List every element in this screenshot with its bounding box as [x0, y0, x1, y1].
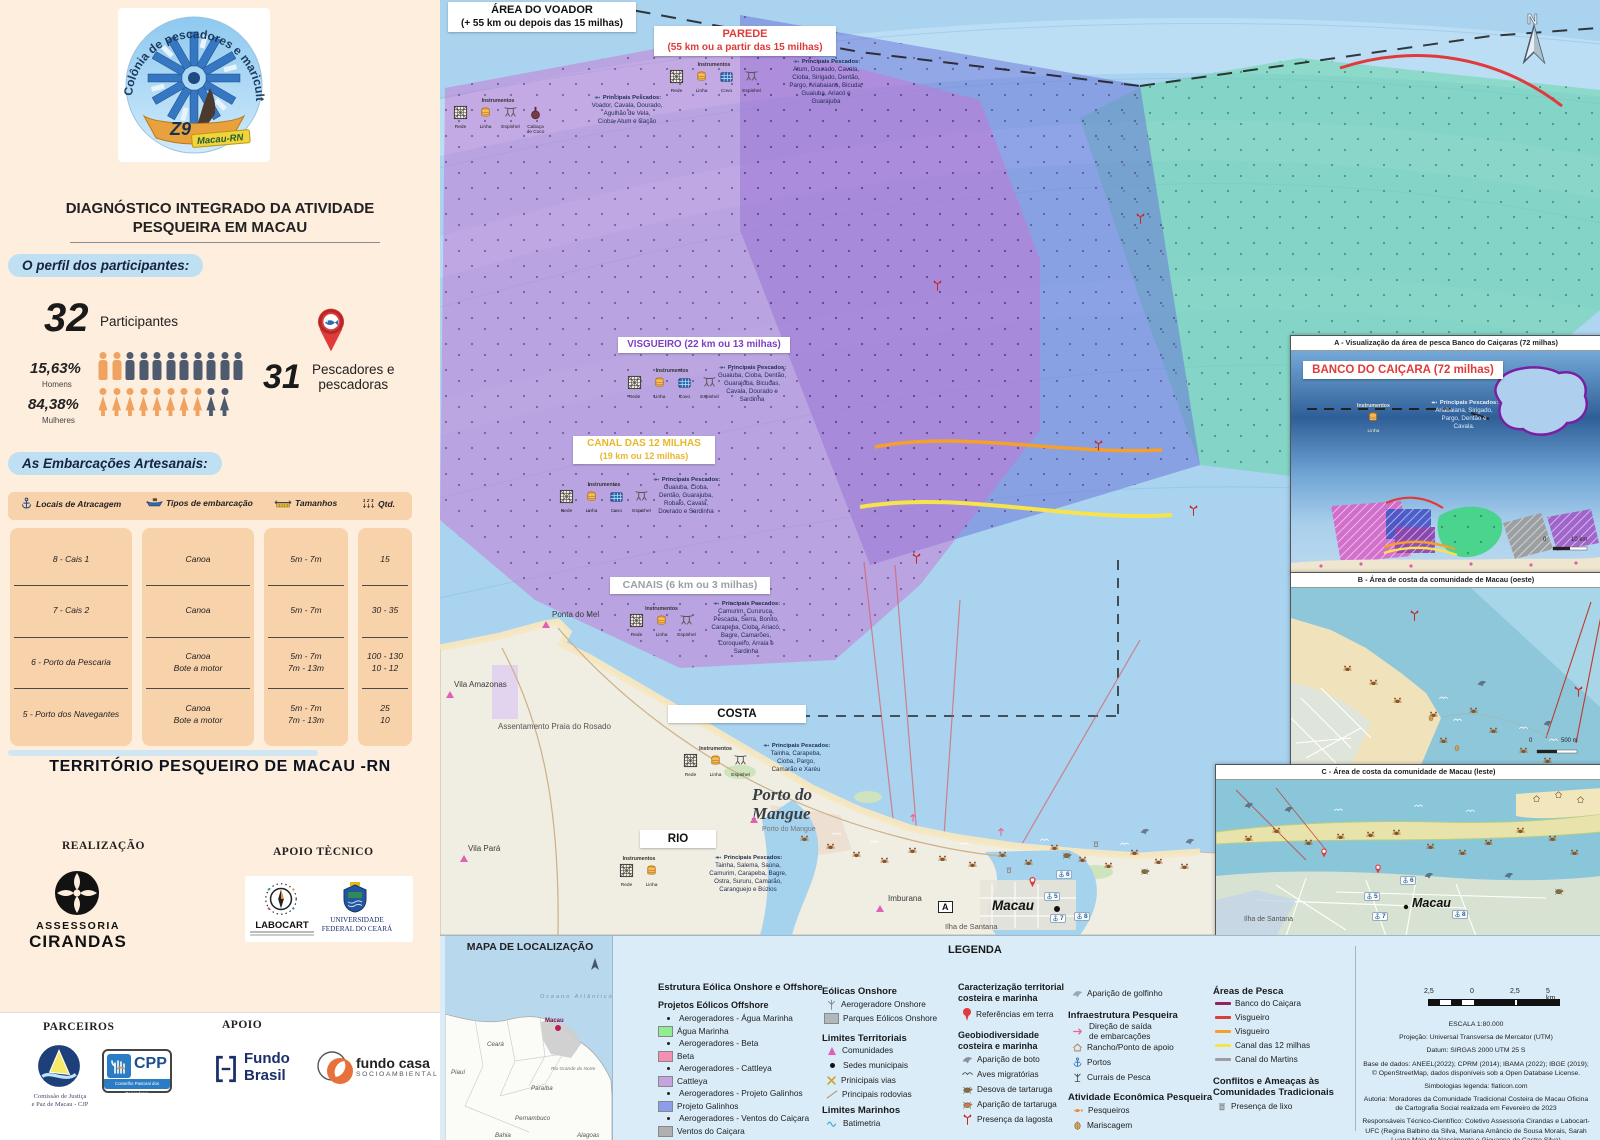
legend-item: Projeto Galinhos: [658, 1101, 738, 1112]
fundo-casa-label: fundo casa: [356, 1055, 430, 1071]
rede-icon: [669, 69, 684, 84]
zone-label-voador: ÁREA DO VOADOR (+ 55 km ou depois das 15…: [448, 2, 636, 32]
fish-icon: [714, 854, 722, 861]
inset-a-graphics: [1291, 351, 1600, 573]
boto-icon: [962, 1054, 973, 1065]
parede-pescados: Principais Pescados: Atum, Dourado, Cava…: [762, 58, 890, 106]
parede-instruments: Instrumentos Rede Linha Covo Espinhel: [666, 62, 762, 94]
zone-subtitle: (55 km ou a partir das 15 milhas): [659, 42, 831, 55]
legend-areas-header: Áreas de Pesca: [1213, 986, 1283, 997]
linha-icon: [694, 69, 709, 84]
reference-pin: [1028, 876, 1037, 888]
batimetria-icon: [826, 1118, 839, 1129]
legend-item: Sedes municipais: [826, 1061, 908, 1071]
sede-municipal-dot: [1054, 906, 1060, 912]
fundo-brasil-label: Fundo Brasil: [244, 1051, 290, 1084]
legend-item: Comunidades: [826, 1046, 893, 1056]
inset-c: C - Área de costa da comunidade de Macau…: [1215, 764, 1600, 935]
mariscagem-icon: [1072, 1120, 1083, 1131]
canal12-pescados: Principais Pescados: Guaiuba, Cioba, Den…: [636, 476, 736, 516]
legend-item: Visgueiro: [1215, 1027, 1269, 1037]
place-porto-do-mangue: Porto do Mangue: [752, 786, 812, 823]
cirandas-logo: [52, 868, 102, 918]
legend-item: Batimetria: [826, 1118, 880, 1129]
community-marker: [876, 905, 884, 912]
rede-icon: [629, 613, 644, 628]
port-marker: 8: [1452, 910, 1468, 919]
compass-north-icon: N: [1508, 8, 1560, 70]
linha-icon: [644, 863, 659, 878]
golfinho-icon: [1072, 988, 1083, 999]
port-marker: 6: [1400, 876, 1416, 885]
cell: 15: [362, 534, 408, 586]
scale-label: 0: [1470, 988, 1474, 995]
cell: Canoa Bote a motor: [146, 689, 250, 740]
voador-instruments: Instrumentos Rede Linha Espinhel Cabaça …: [450, 98, 546, 135]
linha-icon: [584, 489, 599, 504]
fish-icon: [1430, 399, 1438, 406]
cell: 6 - Porto da Pescaria: [14, 638, 128, 690]
inset-c-macau: Macau: [1412, 896, 1451, 910]
credit-line: Base de dados: ANEEL(2022); CPRM (2014);…: [1360, 1060, 1592, 1078]
scale-label: 2,5: [1510, 988, 1520, 995]
legend-item: Aves migratórias: [962, 1069, 1039, 1080]
credit-line: Autoria: Moradores da Comunidade Tradici…: [1360, 1095, 1592, 1113]
legend-item: Banco do Caiçara: [1215, 999, 1301, 1009]
inset-a-scale-max: 10 km: [1571, 537, 1587, 543]
legend-item: Aerogeradores - Projeto Galinhos: [662, 1089, 803, 1099]
scale-label: 2,5: [1424, 988, 1434, 995]
divider: [70, 242, 380, 243]
area-line: [1215, 1044, 1231, 1047]
inset-a-pescados: Principais Pescados: Ariabaiana, Sirigad…: [1409, 399, 1519, 431]
men-label: Homens: [42, 380, 72, 389]
cell: 7 - Cais 2: [14, 586, 128, 638]
credit-line: Responsáveis Técnico-Científico: Coletiv…: [1360, 1117, 1592, 1140]
legend-item: Presença de lixo: [1217, 1101, 1292, 1112]
macau-dot: [555, 1025, 561, 1031]
zone-title: CANAL DAS 12 MILHAS: [587, 438, 701, 449]
fish-icon: [712, 600, 720, 607]
participants-count: 32: [44, 296, 89, 341]
cell: 5m - 7m 7m - 13m: [268, 638, 344, 690]
inset-a-title: A - Visualização da área de pesca Banco …: [1291, 336, 1600, 351]
legend-geobio-header: Geobiodiversidade costeira e marinha: [958, 1030, 1039, 1052]
fish-pin-icon: [312, 306, 350, 354]
zone-title: PAREDE: [722, 28, 767, 40]
inset-b-scale-0: 0: [1529, 738, 1532, 744]
legend-offshore-subheader: Projetos Eólicos Offshore: [658, 1000, 769, 1011]
legend-item: Canal das 12 milhas: [1215, 1041, 1310, 1051]
accent-bar: [8, 750, 318, 756]
covo-icon: [677, 375, 692, 390]
community-marker: [750, 816, 758, 823]
location-map-graphics: Oceano Atlântico Macau Ceará Piauí Paraí…: [445, 936, 612, 1140]
section-boats-heading: As Embarcações Artesanais:: [8, 452, 222, 475]
covo-icon: [719, 69, 734, 84]
zone-label-parede: PAREDE (55 km ou a partir das 15 milhas): [654, 26, 836, 56]
legend-item: Parques Eólicos Onshore: [824, 1013, 937, 1024]
place-vila-amazonas: Vila Amazonas: [454, 680, 507, 689]
community-marker: [542, 621, 550, 628]
fundo-casa-sub: SOCIOAMBIENTAL: [356, 1071, 438, 1078]
linha-icon: [654, 613, 669, 628]
espinhel-icon: [744, 69, 759, 84]
state-label: Alagoas: [576, 1132, 599, 1139]
legend-item: Aparição de golfinho: [1072, 988, 1163, 999]
marker-a: A: [938, 901, 953, 913]
legend-limites-terr-header: Limites Territoriais: [822, 1033, 907, 1044]
state-label: Pernambuco: [515, 1115, 551, 1122]
lobster-icon: [962, 1114, 973, 1125]
legend-item: Referências em terra: [962, 1008, 1053, 1022]
legend-item: Beta: [658, 1051, 694, 1062]
legend-limites-mar-header: Limites Marinhos: [822, 1105, 900, 1116]
participants-label: Participantes: [100, 314, 178, 329]
place-rosado: Assentamento Praia do Rosado: [498, 722, 611, 731]
community-marker: [446, 691, 454, 698]
boats-col-tipos: Canoa Canoa Canoa Bote a motor Canoa Bot…: [142, 528, 254, 746]
legend-item: Água Marinha: [658, 1026, 729, 1037]
anchor-icon: [20, 497, 33, 510]
cjp-logo: [36, 1043, 82, 1089]
pesqueiros-icon: [1072, 1105, 1084, 1116]
colonia-z9-logo: Z9 Macau-RN Colônia de pescadores e mari…: [118, 8, 270, 162]
parceiros-label: PARCEIROS: [43, 1021, 114, 1033]
cpp-hand-icon: [107, 1054, 131, 1078]
area-swatch: [824, 1013, 839, 1024]
fish-icon: [762, 742, 770, 749]
cell: 25 10: [362, 689, 408, 740]
aerogerador-dot-icon: [667, 1092, 670, 1095]
boats-table-header: Locais de Atracagem Tipos de embarcação …: [8, 492, 412, 520]
legend-onshore-header: Eólicas Onshore: [822, 986, 897, 997]
fishers-count: 31: [263, 358, 301, 397]
poster-canvas: Z9 Macau-RN Colônia de pescadores e mari…: [0, 0, 1600, 1140]
partners-strip: PARCEIROS APOIO Comissão de Justiça e Pa…: [0, 1012, 440, 1140]
realizacao-label: REALIZAÇÃO: [62, 840, 145, 852]
legend-item: Aerogeradores - Água Marinha: [662, 1014, 793, 1024]
fish-icon: [652, 476, 660, 483]
rede-icon: [683, 753, 698, 768]
credit-line: Datum: SIRGAS 2000 UTM 25 S: [1360, 1046, 1592, 1055]
area-line: [1215, 1016, 1231, 1019]
zone-label-canal12: CANAL DAS 12 MILHAS (19 km ou 12 milhas): [573, 436, 715, 464]
zone-label-visgueiro: VISGUEIRO (22 km ou 13 milhas): [618, 337, 790, 353]
legend-title: LEGENDA: [948, 944, 1002, 957]
apoio-tecnico-label: APOIO TÈCNICO: [273, 846, 374, 858]
rede-icon: [619, 863, 634, 878]
fish-icon: [792, 58, 800, 65]
bottom-panel: Oceano Atlântico Macau Ceará Piauí Paraí…: [440, 935, 1600, 1140]
turtle-icon: [962, 1084, 973, 1095]
fishers-label: Pescadores e pescadoras: [312, 362, 395, 392]
turtle-icon: [962, 1099, 973, 1110]
port-marker: 6: [1056, 870, 1072, 879]
legend-item: Principais rodovias: [826, 1089, 912, 1100]
inset-c-graphics: [1216, 780, 1600, 935]
state-label: Paraíba: [531, 1085, 553, 1092]
trash-icon: [1217, 1101, 1227, 1112]
rio-pescados: Principais Pescados: Tainha, Salema, Saú…: [678, 854, 818, 894]
inset-c-ilha: Ilha de Santana: [1244, 916, 1293, 923]
cell: 100 - 130 10 - 12: [362, 638, 408, 690]
boats-col-locais: 8 - Cais 1 7 - Cais 2 6 - Porto da Pesca…: [10, 528, 132, 746]
rio-instruments: Instrumentos Rede Linha: [616, 856, 662, 888]
place-ponta-do-mel: Ponta do Mel: [552, 610, 599, 619]
inset-b: B - Área de costa da comunidade de Macau…: [1290, 572, 1600, 766]
legend-conflitos-header: Conflitos e Ameaças às Comunidades Tradi…: [1213, 1076, 1334, 1099]
cpp-caption: Conselho Pastoral dos Pescadores: [104, 1079, 170, 1089]
labocart-caption-bar2: [250, 934, 314, 936]
linha-icon: [478, 105, 493, 120]
port-marker: 5: [1364, 892, 1380, 901]
legend-divider: [1355, 946, 1356, 1131]
state-label: Ceará: [487, 1041, 504, 1048]
rodovia-icon: [826, 1089, 838, 1100]
area-line: [1215, 1030, 1231, 1033]
costa-instruments: Instrumentos Rede Linha Espinhel: [680, 746, 751, 778]
area-swatch: [658, 1101, 673, 1112]
port-marker: 7: [1372, 912, 1388, 921]
legend-item: Direção de saída de embarcações: [1072, 1022, 1152, 1041]
apoio-label: APOIO: [222, 1019, 262, 1031]
port-marker: 7: [1050, 914, 1066, 923]
section-profile-heading: O perfil dos participantes:: [8, 254, 203, 277]
canais-instruments: Instrumentos Rede Linha Espinhel: [626, 606, 697, 638]
legend-item: Canal do Martins: [1215, 1055, 1298, 1065]
macau-label: Macau: [545, 1018, 564, 1024]
legend-item: Prinicipais vias: [826, 1075, 896, 1086]
bird-icon: [962, 1069, 973, 1080]
inset-b-graphics: [1291, 588, 1600, 765]
rancho-icon: [1072, 1042, 1083, 1053]
cell: Canoa: [146, 586, 250, 638]
legend-offshore-header: Estrutura Eólica Onshore e Offshore: [658, 982, 823, 993]
main-map: ÁREA DO VOADOR (+ 55 km ou depois das 15…: [440, 0, 1600, 935]
legend-item: Portos: [1072, 1057, 1111, 1068]
boats-col-qtd: 15 30 - 35 100 - 130 10 - 12 25 10: [358, 528, 412, 746]
scale-bar: 2,5 0 2,5 5 km: [1428, 988, 1560, 1006]
scale-label: 5 km: [1546, 988, 1560, 1002]
place-ilha-de-santana: Ilha de Santana: [945, 922, 998, 931]
legend-item: Aparição de tartaruga: [962, 1099, 1057, 1110]
inset-a-instruments: Instrumentos Linha: [1357, 403, 1390, 434]
legend-item: Desova de tartaruga: [962, 1084, 1052, 1095]
area-swatch: [658, 1051, 673, 1062]
port-marker: 8: [1074, 912, 1090, 921]
cjp-caption: Comissão de Justiça e Paz de Macau - CJP: [14, 1093, 106, 1109]
poster-title: DIAGNÓSTICO INTEGRADO DA ATIVIDADE PESQU…: [20, 200, 420, 238]
aerogerador-dot-icon: [667, 1117, 670, 1120]
quantity-icon: [362, 497, 375, 510]
rede-icon: [627, 375, 642, 390]
legend-item: Aparição de boto: [962, 1054, 1040, 1065]
legend-item: Pesqueiros: [1072, 1105, 1130, 1116]
legend-item: Cattleya: [658, 1076, 707, 1087]
women-pictogram: [97, 388, 231, 418]
area-swatch: [658, 1076, 673, 1087]
sidebar: Z9 Macau-RN Colônia de pescadores e mari…: [0, 0, 441, 1140]
zone-label-canais: CANAIS (6 km ou 3 milhas): [610, 577, 770, 594]
women-label: Mulheres: [42, 416, 75, 425]
legend-item: Aerogeradore Onshore: [826, 999, 926, 1010]
legend-item: Ventos do Caiçara: [658, 1126, 745, 1137]
aerogerador-dot-icon: [667, 1017, 670, 1020]
inset-c-title: C - Área de costa da comunidade de Macau…: [1216, 765, 1600, 780]
logo-z9: Z9: [169, 119, 191, 139]
rede-icon: [559, 489, 574, 504]
fish-icon: [593, 94, 601, 101]
fundo-brasil-mark: [214, 1053, 238, 1085]
cell: 30 - 35: [362, 586, 408, 638]
cpp-logo: CPP Conselho Pastoral dos Pescadores: [102, 1049, 172, 1093]
covo-icon: [609, 489, 624, 504]
women-pct: 84,38%: [28, 396, 79, 413]
zone-label-costa: COSTA: [668, 705, 806, 723]
curral-icon: [1072, 1072, 1083, 1083]
porto-anchor-icon: [1072, 1057, 1083, 1068]
voador-pescados: Principais Pescados: Voador, Cavala, Dou…: [552, 94, 702, 126]
men-pictogram: [97, 352, 244, 382]
credit-line: Projeção: Universal Transversa de Mercat…: [1360, 1033, 1592, 1042]
direction-arrow-icon: [1072, 1026, 1085, 1037]
boat-icon: [146, 497, 163, 508]
place-vila-para: Vila Pará: [468, 844, 500, 853]
ruler-icon: [274, 497, 292, 508]
cell: 5m - 7m: [268, 586, 344, 638]
cell: 5 - Porto dos Navegantes: [14, 689, 128, 740]
zone-subtitle: (+ 55 km ou depois das 15 milhas): [453, 18, 631, 31]
col-label: Tipos de embarcação: [166, 498, 253, 508]
costa-pescados: Principais Pescados: Tainha, Carapeba, C…: [746, 742, 846, 774]
espinhel-icon: [503, 105, 518, 120]
area-swatch: [658, 1126, 673, 1137]
legend-item: Presença da lagosta: [962, 1114, 1053, 1125]
cirandas-line2: CIRANDAS: [18, 932, 138, 952]
cell: 5m - 7m: [268, 534, 344, 586]
scale-bar-segments: [1428, 999, 1560, 1006]
ocean-label: Oceano Atlântico: [540, 994, 612, 1000]
legend-infra-header: Infraestrutura Pesqueira: [1068, 1010, 1178, 1021]
legend-item: Visgueiro: [1215, 1013, 1269, 1023]
labocart-label: LABOCART: [252, 920, 312, 931]
rede-icon: [453, 105, 468, 120]
col-label: Qtd.: [378, 499, 395, 509]
community-triangle-icon: [828, 1047, 836, 1055]
boats-col-tamanhos: 5m - 7m 5m - 7m 5m - 7m 7m - 13m 5m - 7m…: [264, 528, 348, 746]
legend-item: Aerogeradores - Ventos do Caiçara: [662, 1114, 809, 1124]
zone-title: ÁREA DO VOADOR: [491, 4, 593, 16]
legend-atividade-header: Atividade Econômica Pesqueira: [1068, 1092, 1212, 1103]
legend-item: Aerogeradores - Cattleya: [662, 1064, 772, 1074]
rn-label: Rio Grande do Norte: [551, 1066, 596, 1072]
credit-line: ESCALA 1:80.000: [1360, 1020, 1592, 1029]
location-map-title: MAPA DE LOCALIZAÇÃO: [455, 941, 605, 953]
state-label: Bahia: [495, 1132, 511, 1139]
area-swatch: [658, 1026, 673, 1037]
state-label: Piauí: [451, 1069, 466, 1076]
cpp-label: CPP: [134, 1055, 167, 1073]
legend-item: Aerogeradores - Beta: [662, 1039, 758, 1049]
legend-item: Currais de Pesca: [1072, 1072, 1151, 1083]
linha-icon: [708, 753, 723, 768]
port-marker: 5: [1044, 892, 1060, 901]
fundo-casa-mark: [316, 1049, 354, 1087]
place-macau: Macau: [992, 898, 1034, 913]
men-pct: 15,63%: [30, 360, 81, 377]
inset-a: A - Visualização da área de pesca Banco …: [1290, 335, 1600, 574]
cell: 5m - 7m 7m - 13m: [268, 689, 344, 740]
area-line: [1215, 1002, 1231, 1005]
linha-icon: [652, 375, 667, 390]
compass-n: N: [1527, 11, 1538, 28]
place-porto-do-mangue-small: Porto do Mangue: [762, 826, 816, 833]
credit-line: Simbologias legenda: flaticon.com: [1360, 1082, 1592, 1091]
fish-icon: [718, 364, 726, 371]
canais-pescados: Principais Pescados: Camurim, Cururuca, …: [692, 600, 800, 656]
place-imburana: Imburana: [888, 894, 922, 903]
sede-dot-icon: [830, 1063, 835, 1068]
cabaca-icon: [528, 105, 543, 120]
legend-item: Rancho/Ponto de apoio: [1072, 1042, 1174, 1053]
ufc-label: UNIVERSIDADE FEDERAL DO CEARÁ: [318, 916, 396, 934]
territory-title: TERRITÓRIO PESQUEIRO DE MACAU -RN: [0, 758, 440, 776]
cell: Canoa: [146, 534, 250, 586]
labocart-logo: [262, 880, 300, 918]
aerogerador-dot-icon: [667, 1042, 670, 1045]
inset-b-scale-max: 500 m: [1561, 738, 1578, 744]
vias-cross-icon: [826, 1075, 837, 1086]
aerogerador-dot-icon: [667, 1067, 670, 1070]
inset-a-scale-0: 0: [1543, 537, 1546, 543]
area-line: [1215, 1058, 1231, 1061]
location-map: Oceano Atlântico Macau Ceará Piauí Paraí…: [445, 936, 613, 1140]
cell: 8 - Cais 1: [14, 534, 128, 586]
legend-caract-header: Caracterização territorial costeira e ma…: [958, 982, 1064, 1004]
community-marker: [460, 855, 468, 862]
col-label: Tamanhos: [295, 498, 337, 508]
cirandas-line1: ASSESSORIA: [18, 920, 138, 932]
col-label: Locais de Atracagem: [36, 499, 121, 509]
linha-icon: [1366, 410, 1380, 424]
reference-pin-icon: [962, 1008, 972, 1022]
banco-caicara-label: BANCO DO CAIÇARA (72 milhas): [1303, 361, 1503, 379]
inset-b-title: B - Área de costa da comunidade de Macau…: [1291, 573, 1600, 588]
visgueiro-pescados: Principais Pescados: Guaiuba, Cioba, Den…: [696, 364, 808, 404]
turbine-icon: [826, 999, 837, 1010]
zone-label-rio: RIO: [640, 830, 716, 848]
map-credits: ESCALA 1:80.000 Projeção: Universal Tran…: [1360, 1020, 1592, 1140]
zone-subtitle: (19 km ou 12 milhas): [578, 451, 710, 462]
labocart-caption-bar: [250, 931, 314, 933]
legend-item: Mariscagem: [1072, 1120, 1132, 1131]
cell: Canoa Bote a motor: [146, 638, 250, 690]
ufc-crest: [342, 880, 368, 914]
